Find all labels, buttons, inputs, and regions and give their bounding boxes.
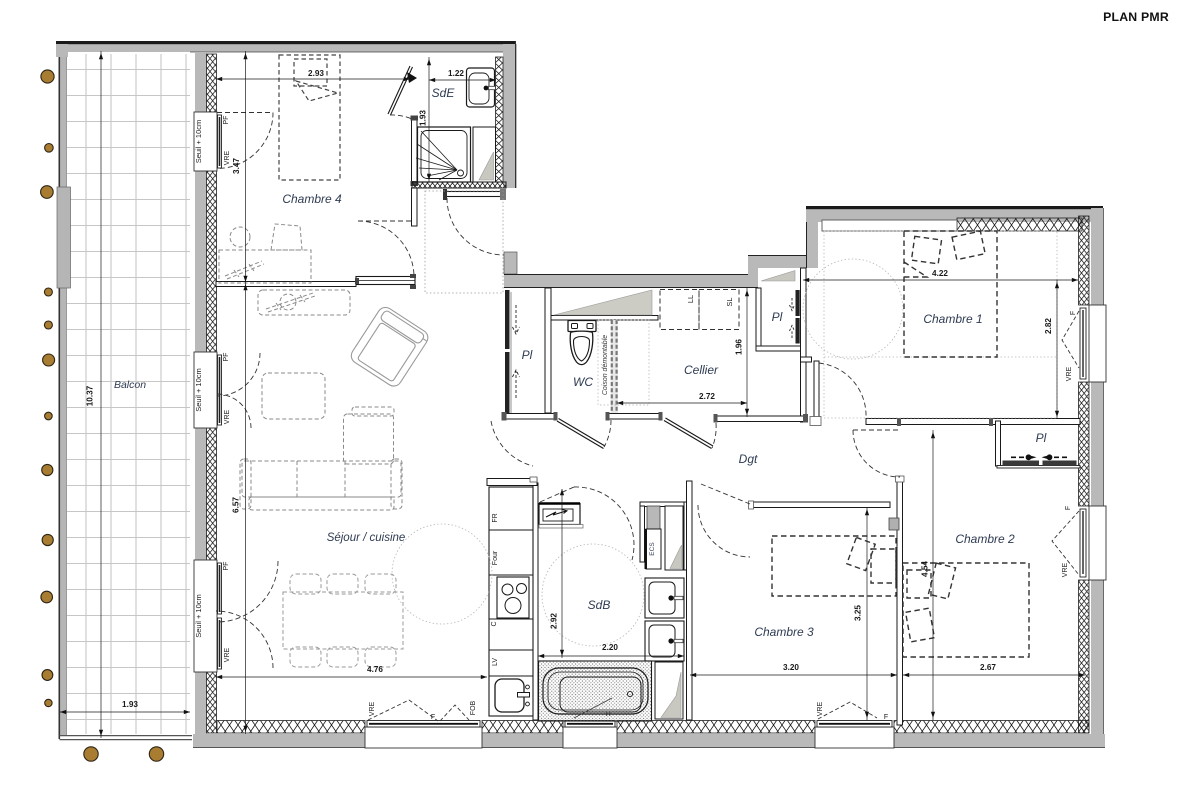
- svg-text:VRE: VRE: [224, 647, 231, 662]
- svg-text:WC: WC: [573, 375, 593, 389]
- svg-text:PF: PF: [223, 353, 230, 362]
- svg-text:H: H: [606, 711, 611, 718]
- svg-text:Dgt: Dgt: [739, 452, 758, 466]
- svg-text:F: F: [431, 714, 435, 721]
- svg-text:Séjour / cuisine: Séjour / cuisine: [327, 532, 406, 544]
- svg-text:F: F: [884, 714, 888, 721]
- svg-text:PF: PF: [223, 562, 230, 571]
- svg-text:2.20: 2.20: [602, 643, 618, 652]
- svg-text:ECS: ECS: [649, 542, 656, 556]
- svg-text:4.22: 4.22: [932, 269, 948, 278]
- svg-text:VRE: VRE: [817, 701, 824, 716]
- svg-text:Chambre 4: Chambre 4: [282, 192, 342, 206]
- svg-text:Pl: Pl: [772, 310, 783, 324]
- svg-text:1.93: 1.93: [419, 110, 428, 126]
- svg-text:PLAN PMR: PLAN PMR: [1103, 10, 1169, 24]
- svg-text:Coison démontable: Coison démontable: [602, 335, 609, 395]
- svg-text:Chambre 1: Chambre 1: [923, 312, 982, 326]
- svg-text:SdE: SdE: [432, 86, 456, 100]
- svg-text:3.25: 3.25: [854, 605, 863, 621]
- svg-text:VRE: VRE: [1066, 366, 1073, 381]
- svg-text:Seuil + 10cm: Seuil + 10cm: [194, 368, 203, 412]
- svg-text:Chambre 2: Chambre 2: [955, 532, 1015, 546]
- svg-text:2.92: 2.92: [550, 613, 559, 629]
- svg-text:VRE: VRE: [224, 150, 231, 165]
- svg-text:VRE: VRE: [1062, 562, 1069, 577]
- svg-text:C: C: [491, 621, 498, 626]
- svg-text:FOB: FOB: [470, 700, 477, 715]
- svg-text:SL: SL: [725, 297, 734, 306]
- svg-text:Seuil + 10cm: Seuil + 10cm: [194, 120, 203, 164]
- svg-text:Balcon: Balcon: [114, 379, 146, 391]
- svg-text:10.37: 10.37: [86, 385, 95, 406]
- svg-text:F: F: [1070, 311, 1077, 315]
- svg-text:FR: FR: [492, 513, 499, 522]
- svg-text:1.93: 1.93: [122, 700, 138, 709]
- svg-text:Chambre 3: Chambre 3: [754, 625, 814, 639]
- svg-text:LV: LV: [492, 658, 499, 666]
- svg-text:PF: PF: [223, 116, 230, 125]
- svg-text:2.93: 2.93: [308, 69, 324, 78]
- svg-text:4.76: 4.76: [367, 665, 383, 674]
- svg-text:Four: Four: [492, 550, 499, 565]
- svg-text:Seuil + 10cm: Seuil + 10cm: [194, 594, 203, 638]
- svg-text:Cellier: Cellier: [684, 363, 719, 377]
- svg-text:LL: LL: [686, 295, 695, 303]
- svg-text:Pl: Pl: [1036, 431, 1047, 445]
- svg-text:2.67: 2.67: [980, 663, 996, 672]
- svg-text:1.96: 1.96: [735, 339, 744, 355]
- svg-text:SdB: SdB: [588, 598, 611, 612]
- svg-text:VRE: VRE: [369, 701, 376, 716]
- svg-text:1.22: 1.22: [448, 69, 464, 78]
- svg-text:6.57: 6.57: [232, 497, 241, 513]
- svg-text:VRE: VRE: [224, 409, 231, 424]
- svg-text:2.82: 2.82: [1044, 318, 1053, 334]
- svg-text:3.20: 3.20: [783, 663, 799, 672]
- svg-text:F: F: [1065, 506, 1072, 510]
- svg-text:3.47: 3.47: [232, 158, 241, 174]
- svg-text:4.54: 4.54: [921, 561, 930, 577]
- svg-text:2.72: 2.72: [699, 392, 715, 401]
- svg-text:Pl: Pl: [522, 348, 533, 362]
